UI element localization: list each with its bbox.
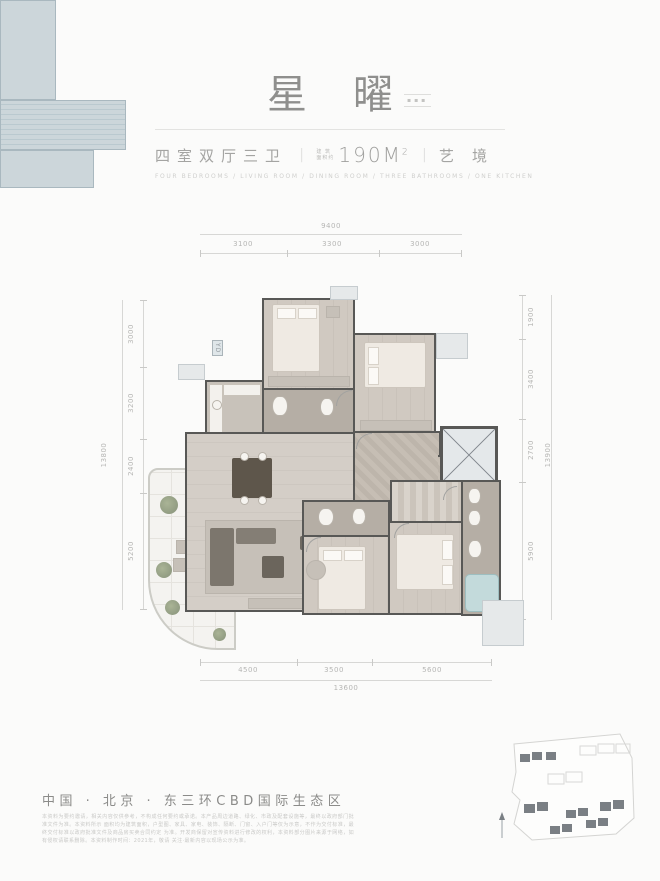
pillow (442, 540, 453, 560)
ac-platform (436, 333, 468, 359)
dining-chair (240, 496, 249, 505)
balcony-south (0, 150, 94, 188)
dining-chair (240, 452, 249, 461)
dim-top-seg2: 3300 (315, 240, 349, 248)
header-divider (155, 129, 505, 130)
round-rug (306, 560, 326, 580)
site-plan-map (488, 726, 646, 852)
bed (364, 342, 426, 388)
dim-line (143, 300, 144, 610)
dim-left-seg2: 3200 (127, 385, 135, 421)
area-group: 建 筑 面积约 190M2 (316, 143, 409, 167)
dim-line (522, 295, 523, 620)
kitchen-counter (223, 384, 261, 396)
dim-left-overall: 13800 (100, 437, 108, 473)
bathroom-3 (302, 500, 390, 538)
pillow (298, 308, 317, 319)
dim-left-seg4: 5200 (127, 533, 135, 569)
bed (272, 304, 320, 372)
page-title: 星曜 (0, 62, 660, 120)
compass-icon (499, 812, 505, 838)
nightstand (326, 306, 340, 318)
dining-chair (258, 452, 267, 461)
dining-table (232, 458, 272, 498)
location-line: 中国 · 北京 · 东三环CBD国际生态区 (42, 790, 345, 809)
subtitle-separator: | (299, 147, 304, 163)
wardrobe (360, 420, 432, 431)
sink (318, 508, 334, 526)
plant (213, 628, 226, 641)
pillow (344, 550, 363, 561)
coffee-table (262, 556, 284, 578)
dim-line (200, 662, 492, 663)
dim-line (200, 234, 462, 235)
ac-platform (330, 286, 358, 300)
subtitle-row: 四室双厅三卫 | 建 筑 面积约 190M2 | 艺境 (155, 140, 505, 170)
dim-line (200, 253, 462, 254)
plant (165, 600, 180, 615)
edition-label: ▪▪▪ (404, 94, 431, 107)
pillow (277, 308, 296, 319)
toilet (468, 540, 482, 558)
bed (318, 546, 366, 610)
plant (156, 562, 172, 578)
plant (160, 496, 178, 514)
room-config-label: 四室双厅三卫 (155, 145, 287, 166)
dim-right-seg4: 5900 (527, 533, 535, 569)
dim-right-seg1: 1900 (527, 299, 535, 335)
sink (468, 488, 481, 504)
area-value: 190M2 (338, 143, 409, 167)
dim-left-seg1: 3000 (127, 316, 135, 352)
pillow (442, 565, 453, 585)
elevator-shaft (440, 426, 498, 484)
dim-top-seg1: 3100 (226, 240, 260, 248)
sink (468, 510, 481, 526)
dim-right-overall: 13900 (544, 437, 552, 473)
disclaimer: 本资料为要约邀请，相关内容仅供参考，不构成任何要约或承诺。本产品周边道路、绿化、… (42, 813, 354, 845)
duct-label: YD (212, 340, 223, 356)
theme-label: 艺境 (439, 145, 505, 166)
dining-chair (258, 496, 267, 505)
dim-line (122, 300, 123, 610)
pillow (368, 347, 379, 365)
english-caption: FOUR BEDROOMS / LIVING ROOM / DINING ROO… (155, 173, 505, 180)
sink (272, 396, 288, 416)
floorplan-poster: 星曜 ▪▪▪ 四室双厅三卫 | 建 筑 面积约 190M2 | 艺境 FOUR … (0, 0, 660, 881)
dim-right-seg3: 2700 (527, 432, 535, 468)
dim-right-seg2: 3400 (527, 361, 535, 397)
dim-bottom-seg3: 5600 (415, 666, 449, 674)
dim-top-seg3: 3000 (403, 240, 437, 248)
area-prefix: 建 筑 面积约 (316, 149, 334, 161)
dim-left-seg3: 2400 (127, 448, 135, 484)
sofa-chaise (236, 528, 276, 544)
pillow (368, 367, 379, 385)
kitchen-sink (212, 400, 222, 410)
toilet (352, 508, 366, 525)
dim-line (200, 680, 492, 681)
dim-bottom-seg1: 4500 (231, 666, 265, 674)
dim-top-overall: 9400 (314, 222, 348, 230)
wardrobe (268, 376, 350, 387)
toilet (320, 398, 334, 416)
ac-platform (178, 364, 205, 380)
dim-bottom-overall: 13600 (329, 684, 363, 692)
ac-platform (482, 600, 524, 646)
master-bed (396, 534, 454, 590)
pillow (323, 550, 342, 561)
sofa (210, 528, 234, 586)
dim-bottom-seg2: 3500 (317, 666, 351, 674)
subtitle-separator: | (422, 147, 427, 163)
